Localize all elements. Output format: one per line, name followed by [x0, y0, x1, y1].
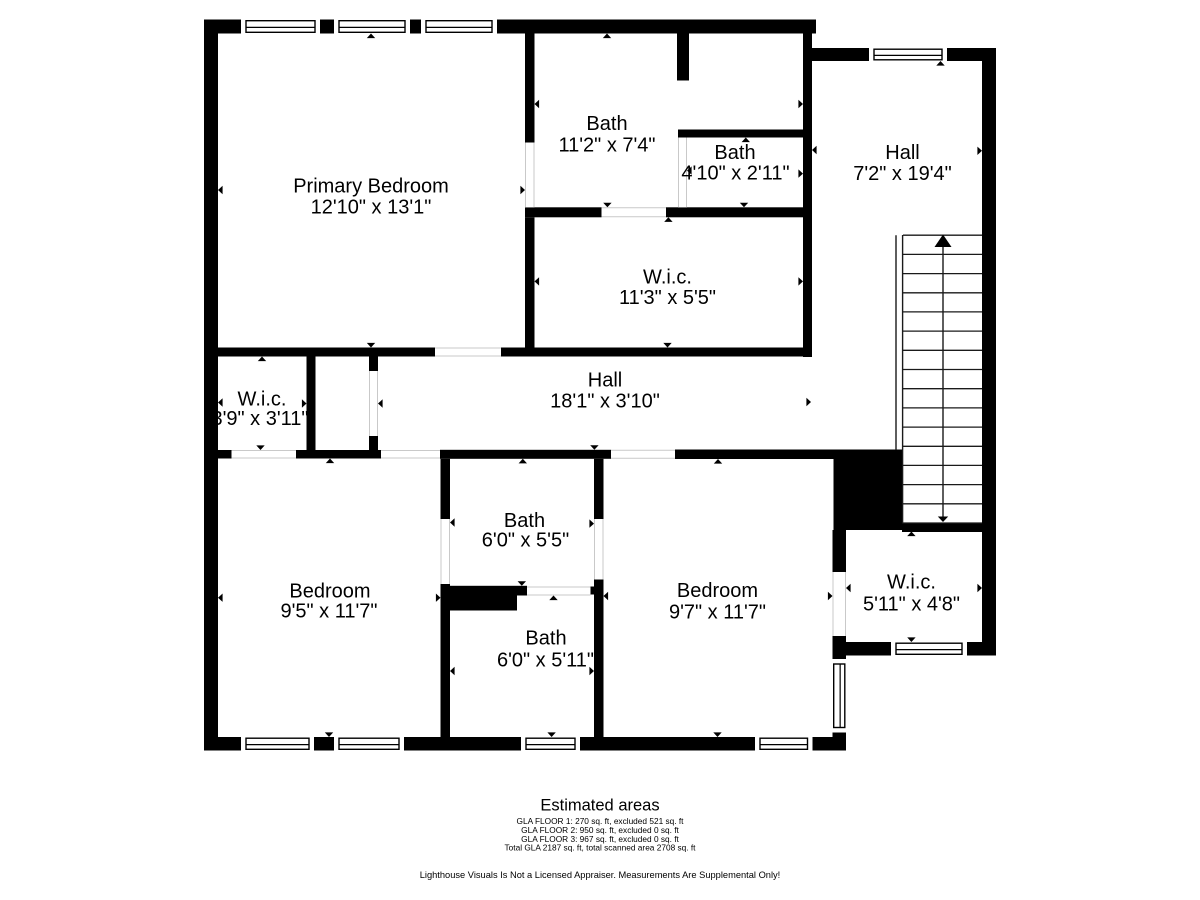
svg-text:11'2" x 7'4": 11'2" x 7'4" — [558, 134, 655, 156]
svg-text:5'11" x 4'8": 5'11" x 4'8" — [863, 594, 960, 616]
svg-text:7'2" x 19'4": 7'2" x 19'4" — [853, 163, 952, 185]
svg-text:12'10" x 13'1": 12'10" x 13'1" — [311, 196, 432, 218]
svg-text:Hall: Hall — [885, 142, 919, 164]
svg-text:Primary Bedroom: Primary Bedroom — [293, 175, 449, 197]
svg-text:6'0" x 5'11": 6'0" x 5'11" — [497, 649, 594, 671]
svg-text:9'5" x 11'7": 9'5" x 11'7" — [280, 600, 377, 622]
svg-text:W.i.c.: W.i.c. — [643, 267, 692, 289]
svg-text:Bath: Bath — [525, 627, 566, 649]
svg-text:18'1" x 3'10": 18'1" x 3'10" — [550, 390, 660, 412]
svg-text:11'3" x 5'5": 11'3" x 5'5" — [619, 287, 716, 309]
svg-text:3'9" x 3'11": 3'9" x 3'11" — [211, 408, 308, 430]
svg-text:Bedroom: Bedroom — [289, 580, 370, 602]
svg-text:Lighthouse Visuals Is Not a Li: Lighthouse Visuals Is Not a Licensed App… — [420, 870, 781, 880]
svg-text:6'0" x 5'5": 6'0" x 5'5" — [482, 530, 569, 552]
svg-text:Bath: Bath — [586, 113, 627, 135]
svg-text:Bath: Bath — [504, 510, 545, 532]
svg-text:4'10" x 2'11": 4'10" x 2'11" — [681, 162, 789, 184]
svg-text:Bath: Bath — [714, 142, 755, 164]
svg-text:Total GLA 2187 sq. ft, total s: Total GLA 2187 sq. ft, total scanned are… — [505, 843, 697, 853]
svg-text:Hall: Hall — [588, 370, 622, 392]
svg-text:W.i.c.: W.i.c. — [887, 571, 936, 593]
svg-text:Bedroom: Bedroom — [677, 580, 758, 602]
svg-text:9'7" x 11'7": 9'7" x 11'7" — [669, 601, 766, 623]
svg-text:Estimated areas: Estimated areas — [540, 796, 659, 814]
